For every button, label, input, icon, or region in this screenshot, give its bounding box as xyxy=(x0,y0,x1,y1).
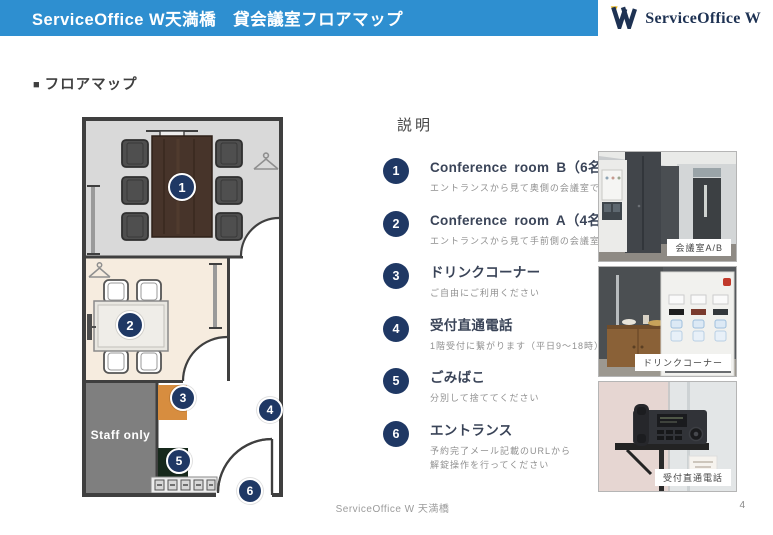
phone xyxy=(633,404,707,446)
legend-number-3: 3 xyxy=(383,263,409,289)
page-title: ServiceOffice W天満橋 貸会議室フロアマップ xyxy=(32,6,403,30)
legend-item-3: 3 ドリンクコーナー ご自由にご利用ください xyxy=(383,261,618,300)
photo-meeting-rooms: 会議室A/B xyxy=(598,151,737,262)
legend-title-2: Conference room A（4名） xyxy=(430,209,618,229)
legend-desc-6-line2: 解錠操作を行ってください xyxy=(430,458,618,472)
locker-row xyxy=(151,477,217,493)
photo-drink-corner: ドリンクコーナー xyxy=(598,266,737,377)
legend-desc-3: ご自由にご利用ください xyxy=(430,286,618,300)
photo-caption-drink-corner: ドリンクコーナー xyxy=(635,354,731,371)
page-number: 4 xyxy=(739,500,745,511)
legend-desc-6: 予約完了メール記載のURLから xyxy=(430,444,618,458)
legend-item-2: 2 Conference room A（4名） エントランスから見て手前側の会議… xyxy=(383,209,618,248)
plan-marker-4: 4 xyxy=(257,397,283,423)
slide: ServiceOffice W天満橋 貸会議室フロアマップ ServiceOff… xyxy=(0,0,773,535)
section-title: フロアマップ xyxy=(45,77,138,93)
legend-title-4: 受付直通電話 xyxy=(430,314,618,334)
legend-title-6: エントランス xyxy=(430,419,618,439)
section-heading: ■フロアマップ xyxy=(33,73,138,94)
photo-reception-phone: 受付直通電話 xyxy=(598,381,737,492)
plan-marker-5: 5 xyxy=(166,448,192,474)
photo-caption-reception-phone: 受付直通電話 xyxy=(655,469,731,486)
plan-marker-6: 6 xyxy=(237,478,263,504)
legend-number-5: 5 xyxy=(383,368,409,394)
legend-title-5: ごみばこ xyxy=(430,366,618,386)
w-logo-icon xyxy=(608,5,638,34)
footer-text: ServiceOffice W 天満橋 xyxy=(310,500,475,515)
company-logo: ServiceOffice W xyxy=(608,6,761,32)
legend-number-1: 1 xyxy=(383,158,409,184)
legend-desc-2: エントランスから見て手前側の会議室です xyxy=(430,234,618,248)
legend-item-1: 1 Conference room B（6名） エントランスから見て奥側の会議室… xyxy=(383,156,618,195)
legend-heading: 説明 xyxy=(397,114,433,135)
legend-title-3: ドリンクコーナー xyxy=(430,261,618,281)
plan-marker-2: 2 xyxy=(116,311,144,339)
legend-desc-1: エントランスから見て奥側の会議室です xyxy=(430,181,618,195)
legend-number-6: 6 xyxy=(383,421,409,447)
square-bullet-icon: ■ xyxy=(33,79,41,91)
floorplan: Staff only 1 2 3 4 5 6 xyxy=(82,117,283,497)
logo-text: ServiceOffice W xyxy=(645,10,761,28)
legend-item-4: 4 受付直通電話 1階受付に繋がります（平日9～18時） xyxy=(383,314,618,353)
plan-marker-1: 1 xyxy=(168,173,196,201)
legend-item-5: 5 ごみばこ 分別して捨ててください xyxy=(383,366,618,405)
legend-number-2: 2 xyxy=(383,211,409,237)
plan-marker-3: 3 xyxy=(170,385,196,411)
photo-caption-meeting-rooms: 会議室A/B xyxy=(667,239,731,256)
legend-item-6: 6 エントランス 予約完了メール記載のURLから 解錠操作を行ってください xyxy=(383,419,618,472)
header-bar: ServiceOffice W天満橋 貸会議室フロアマップ xyxy=(0,0,598,36)
legend-desc-5: 分別して捨ててください xyxy=(430,391,618,405)
legend-desc-4: 1階受付に繋がります（平日9～18時） xyxy=(430,339,618,353)
legend-title-1: Conference room B（6名） xyxy=(430,156,618,176)
legend-number-4: 4 xyxy=(383,316,409,342)
staff-only-label: Staff only xyxy=(84,428,157,442)
